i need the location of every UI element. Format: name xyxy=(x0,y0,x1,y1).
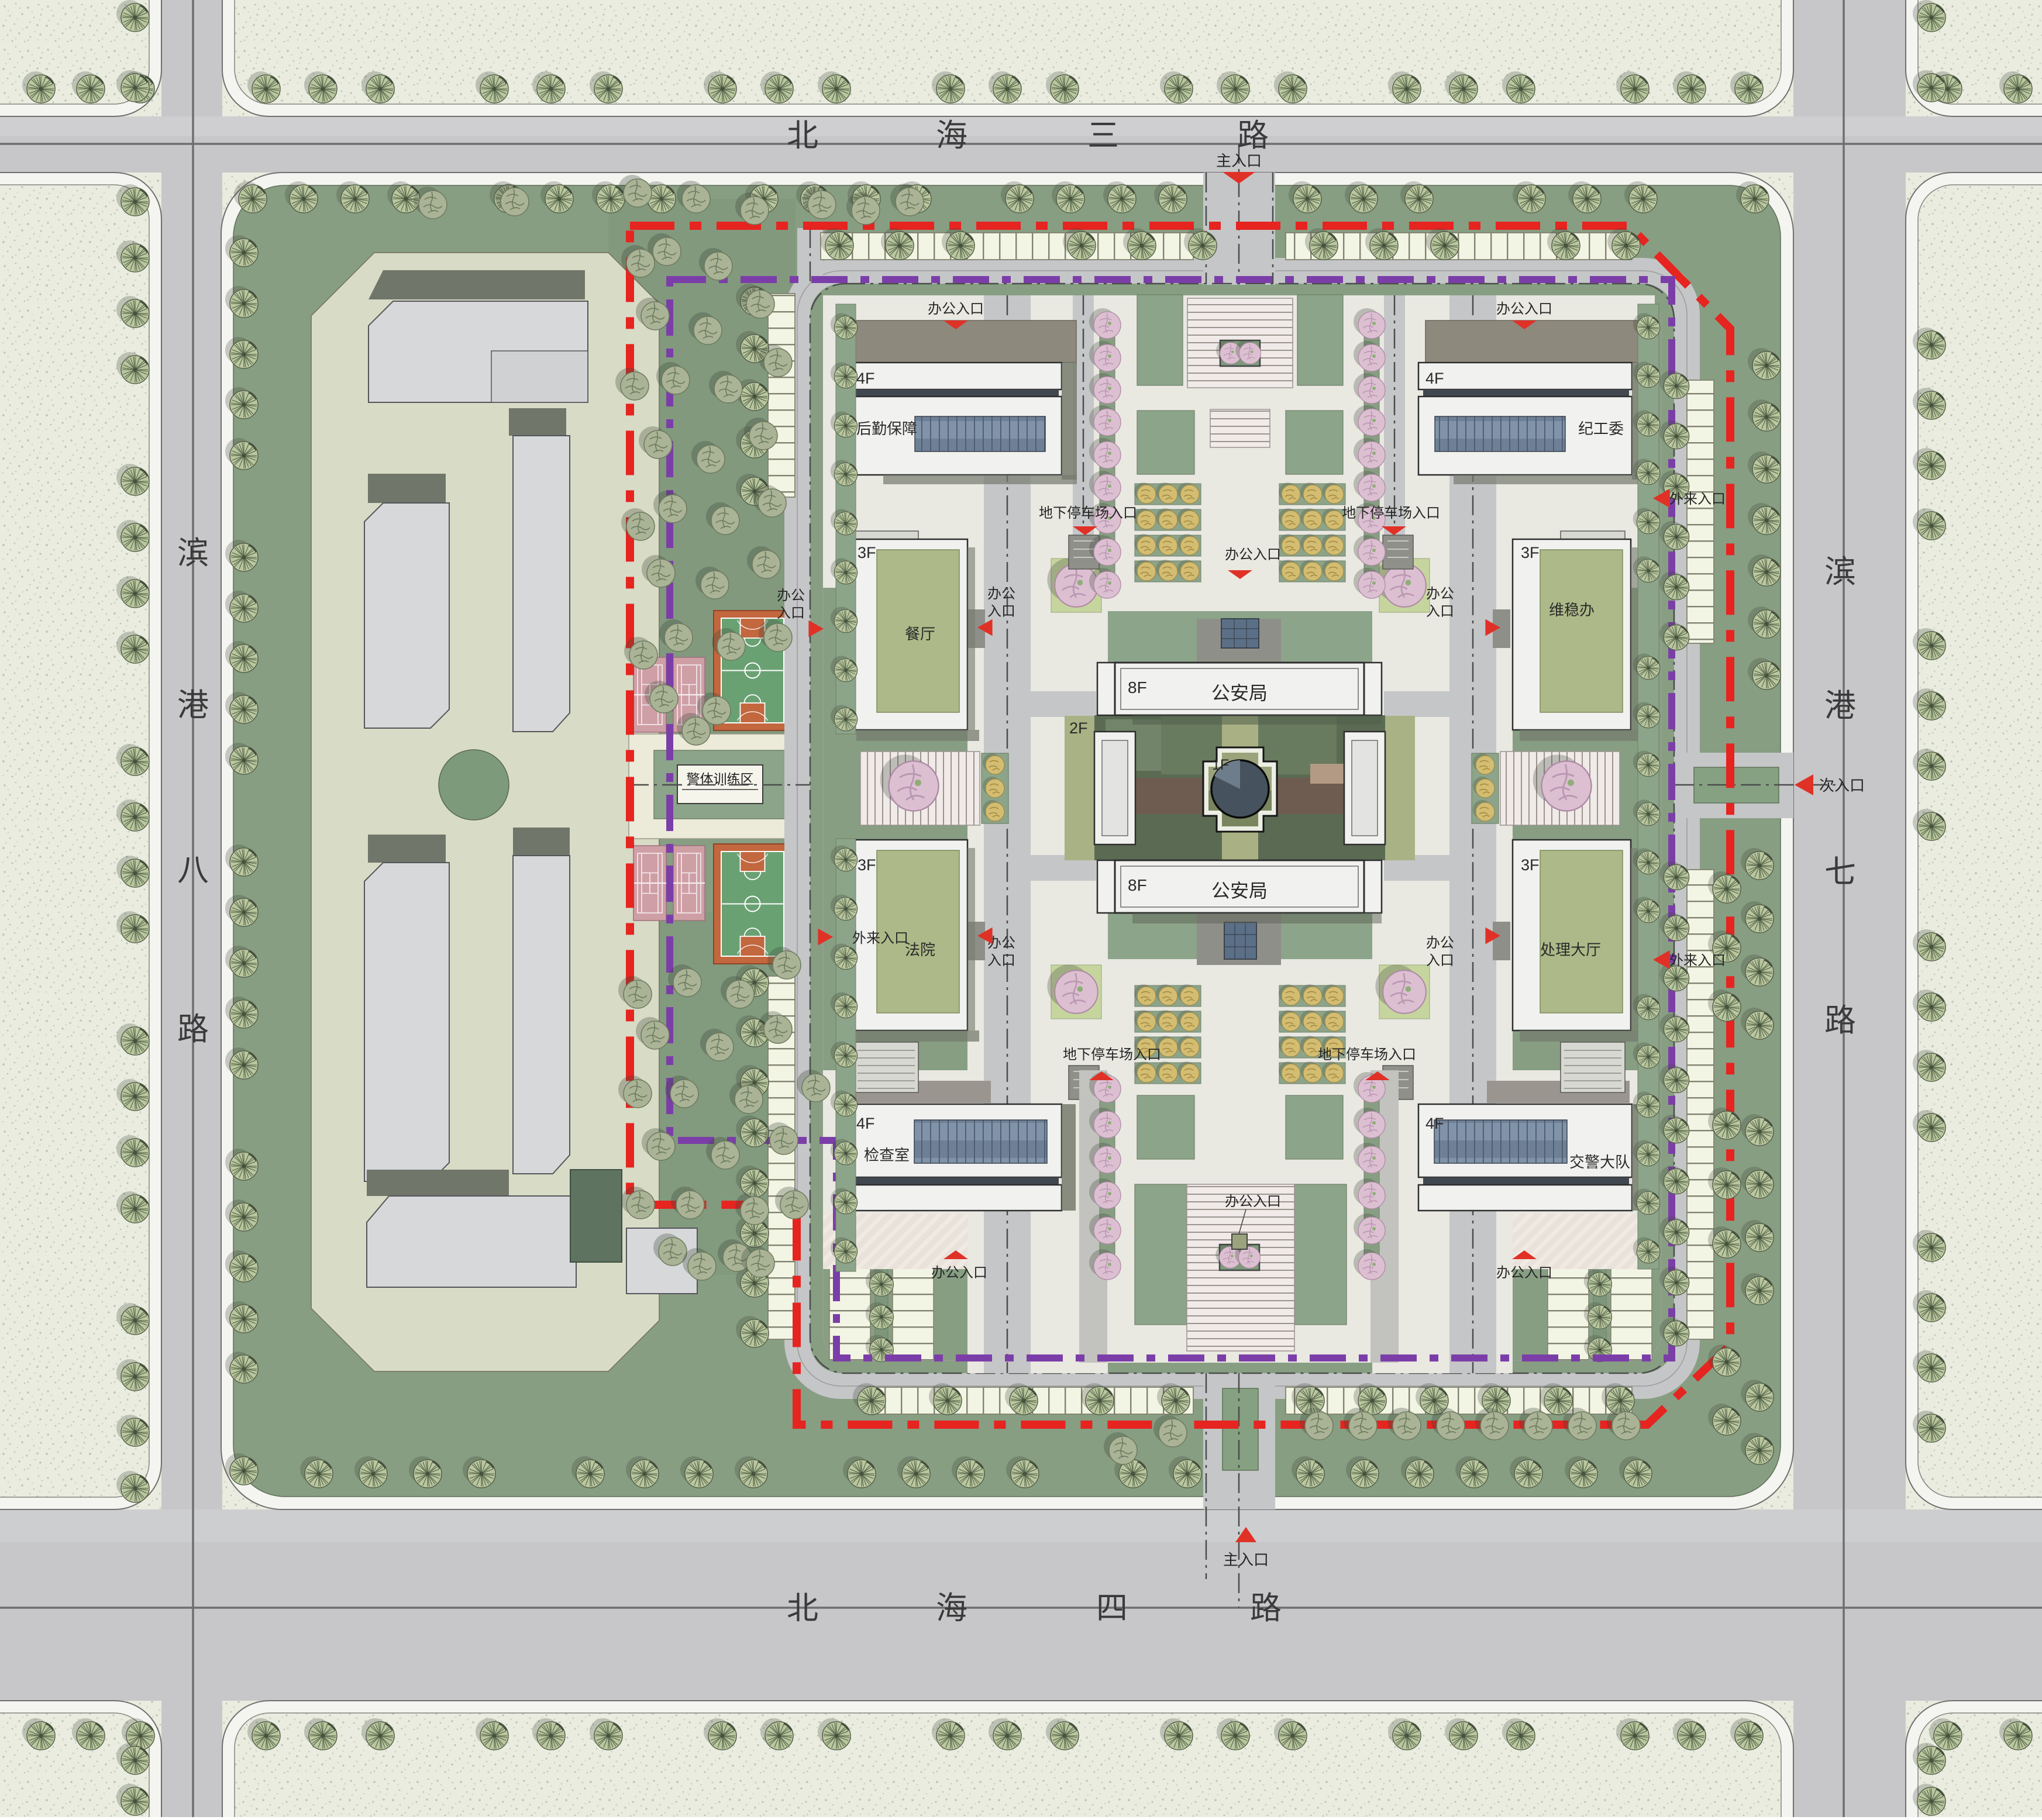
svg-text:地下停车场入口: 地下停车场入口 xyxy=(1318,1047,1416,1063)
svg-text:四: 四 xyxy=(1096,1591,1128,1626)
svg-text:入口: 入口 xyxy=(1426,604,1454,619)
svg-text:1F: 1F xyxy=(1212,757,1229,773)
svg-text:3F: 3F xyxy=(1521,856,1540,874)
svg-text:主入口: 主入口 xyxy=(1223,1551,1269,1569)
svg-text:海: 海 xyxy=(936,1591,967,1626)
svg-text:公安局: 公安局 xyxy=(1211,682,1268,704)
svg-text:港: 港 xyxy=(177,688,209,723)
svg-text:餐厅: 餐厅 xyxy=(905,625,935,643)
svg-text:办公: 办公 xyxy=(1426,935,1454,951)
svg-text:处理大厅: 处理大厅 xyxy=(1540,941,1601,959)
svg-text:8F: 8F xyxy=(1128,876,1147,894)
svg-text:办公: 办公 xyxy=(777,588,805,604)
svg-text:3F: 3F xyxy=(858,856,876,874)
svg-text:次入口: 次入口 xyxy=(1819,777,1865,794)
svg-text:路: 路 xyxy=(1824,1003,1856,1038)
svg-text:入口: 入口 xyxy=(987,604,1015,619)
svg-text:滨: 滨 xyxy=(177,536,209,571)
svg-text:八: 八 xyxy=(177,853,209,888)
svg-text:公安局: 公安局 xyxy=(1211,880,1268,901)
svg-text:检查室: 检查室 xyxy=(864,1146,910,1164)
svg-text:维稳办: 维稳办 xyxy=(1549,601,1595,619)
svg-text:办公: 办公 xyxy=(987,586,1015,602)
svg-text:地下停车场入口: 地下停车场入口 xyxy=(1342,505,1440,521)
svg-text:地下停车场入口: 地下停车场入口 xyxy=(1063,1047,1161,1063)
svg-text:海: 海 xyxy=(936,118,967,153)
svg-text:港: 港 xyxy=(1824,688,1856,723)
svg-text:3F: 3F xyxy=(1521,544,1540,561)
svg-text:4F: 4F xyxy=(856,370,875,387)
svg-text:路: 路 xyxy=(1237,118,1269,153)
svg-text:3F: 3F xyxy=(858,544,876,561)
svg-text:办公入口: 办公入口 xyxy=(1225,1194,1281,1209)
svg-text:4F: 4F xyxy=(1425,1115,1444,1132)
svg-text:办公入口: 办公入口 xyxy=(931,1265,987,1281)
svg-text:外来入口: 外来入口 xyxy=(1669,491,1726,507)
svg-text:法院: 法院 xyxy=(905,941,935,959)
svg-text:地下停车场入口: 地下停车场入口 xyxy=(1039,505,1137,521)
svg-text:入口: 入口 xyxy=(987,953,1015,968)
svg-text:办公入口: 办公入口 xyxy=(928,301,984,317)
svg-text:主入口: 主入口 xyxy=(1216,152,1262,170)
svg-text:4F: 4F xyxy=(856,1115,875,1132)
svg-text:入口: 入口 xyxy=(1426,953,1454,968)
svg-text:办公: 办公 xyxy=(1426,586,1454,602)
svg-text:外来入口: 外来入口 xyxy=(1669,953,1726,968)
svg-text:纪工委: 纪工委 xyxy=(1578,420,1624,437)
svg-text:滨: 滨 xyxy=(1824,554,1856,590)
svg-text:交警大队: 交警大队 xyxy=(1569,1153,1630,1171)
svg-text:2F: 2F xyxy=(1069,719,1088,737)
svg-text:三: 三 xyxy=(1087,118,1119,153)
svg-text:办公入口: 办公入口 xyxy=(1496,1265,1552,1281)
svg-text:北: 北 xyxy=(787,1591,818,1626)
svg-text:4F: 4F xyxy=(1425,370,1444,387)
svg-text:8F: 8F xyxy=(1128,678,1147,697)
svg-text:路: 路 xyxy=(177,1012,209,1047)
svg-text:七: 七 xyxy=(1824,854,1856,890)
svg-text:路: 路 xyxy=(1250,1591,1282,1626)
svg-text:后勤保障: 后勤保障 xyxy=(856,420,917,437)
svg-text:北: 北 xyxy=(787,118,818,153)
svg-text:办公入口: 办公入口 xyxy=(1496,301,1552,317)
svg-text:办公入口: 办公入口 xyxy=(1225,547,1281,563)
svg-text:外来入口: 外来入口 xyxy=(852,930,908,946)
svg-text:入口: 入口 xyxy=(777,605,805,621)
